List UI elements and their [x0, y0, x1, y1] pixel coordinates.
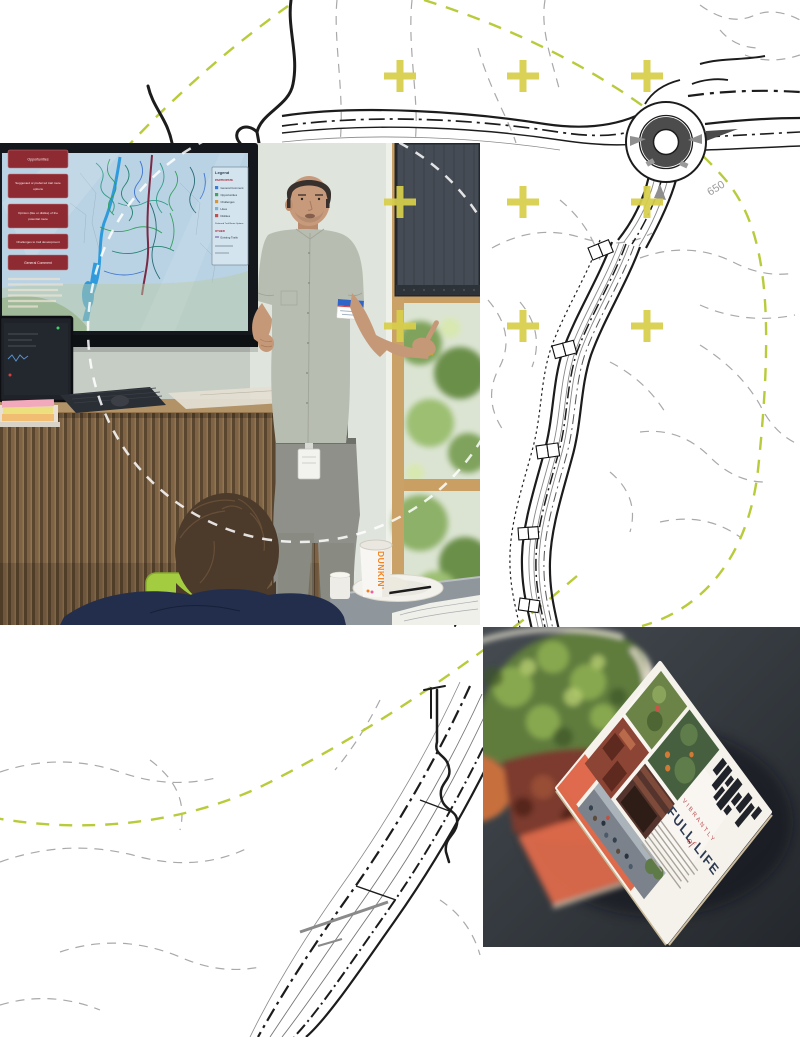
dunkin-logo: DUNKIN': [376, 551, 386, 590]
svg-text:Challenges: Challenges: [221, 200, 236, 204]
svg-text:Opportunities: Opportunities: [221, 193, 238, 197]
roller-shade: [396, 143, 480, 295]
svg-text:potential route: potential route: [28, 217, 48, 221]
corridor-parcels: [518, 240, 613, 613]
north-roads: [645, 56, 765, 104]
svg-text:Preferred Trail Route Options: Preferred Trail Route Options: [215, 222, 244, 225]
screen-button: Suggested or preferred trail route optio…: [8, 174, 68, 198]
svg-text:options: options: [33, 187, 43, 191]
computer-mouse: [111, 396, 129, 407]
legend-panel: Legend PARTICIPATE General Comment Oppor…: [212, 167, 248, 265]
svg-text:OTHER: OTHER: [215, 229, 225, 233]
presentation-photo: Opportunities Suggested or preferred tra…: [0, 143, 480, 625]
svg-text:Opportunities: Opportunities: [27, 158, 49, 162]
svg-text:Dislikes: Dislikes: [221, 214, 231, 218]
collage-canvas: 650: [0, 0, 800, 1037]
screen-button: General Comment: [8, 255, 68, 270]
boundary-lines: [148, 0, 295, 143]
svg-text:Existing Trails: Existing Trails: [221, 236, 239, 240]
presenter-shirt: [258, 229, 364, 443]
window: [392, 143, 480, 625]
sticky-notes: [0, 399, 60, 427]
screen-button: Opportunities: [8, 150, 68, 168]
winding-road-lower: [250, 682, 512, 1037]
svg-text:Opinion (like or dislike) of t: Opinion (like or dislike) of the: [18, 211, 58, 215]
svg-text:General Comment: General Comment: [221, 186, 244, 190]
screen-button: Challenges to trail development: [8, 234, 68, 249]
main-road-east: [705, 118, 800, 150]
main-road-west: [282, 91, 800, 150]
magazine-photo: VIBRANTLY FULL of LIFE: [483, 627, 800, 947]
south-leg: [618, 176, 676, 248]
contour-label: 650: [705, 179, 727, 199]
svg-text:Challenges to trail developmen: Challenges to trail development: [16, 240, 59, 244]
svg-text:General Comment: General Comment: [24, 261, 52, 265]
screen-button: Opinion (like or dislike) of the potenti…: [8, 204, 68, 228]
svg-text:Likes: Likes: [221, 207, 228, 211]
winding-road-upper: [510, 240, 640, 635]
white-cup: [330, 572, 350, 599]
dunkin-cup: DUNKIN': [360, 540, 392, 597]
svg-text:PARTICIPATE: PARTICIPATE: [215, 178, 233, 182]
svg-text:Legend: Legend: [215, 170, 230, 175]
svg-text:Suggested or preferred trail r: Suggested or preferred trail route: [15, 181, 61, 185]
